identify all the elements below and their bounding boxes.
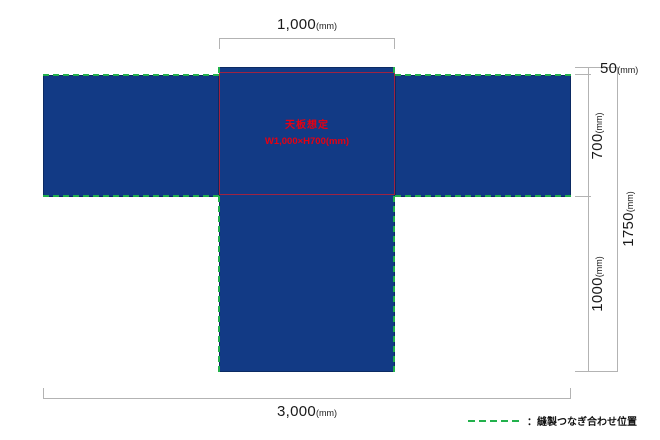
dim-top-width-unit: (mm) xyxy=(316,21,337,31)
dim-total-width-value: 3,000 xyxy=(277,403,316,420)
dim-tick-right-depth-end xyxy=(575,196,591,197)
dim-line-total-width xyxy=(43,398,571,399)
seam-line-left-wing-top xyxy=(43,74,219,76)
fabric-panel-left-wing xyxy=(43,75,219,197)
dim-offset-top-value: 50 xyxy=(600,60,617,77)
seam-dash-sample-icon xyxy=(468,420,520,422)
dim-front-drop-value: 1000 xyxy=(589,277,606,312)
seam-line-right-wing-top xyxy=(395,74,571,76)
fabric-panel-right-wing xyxy=(395,75,571,197)
dim-tick-bottom-left xyxy=(43,388,44,399)
seam-line-left-wing-bottom xyxy=(43,195,219,197)
seam-line-center-left-lower xyxy=(218,196,220,372)
legend-label: ：縫製つなぎ合わせ位置 xyxy=(527,413,637,428)
dim-label-front-drop: 1000(mm) xyxy=(589,256,607,312)
dim-depth-value: 700 xyxy=(589,134,606,160)
legend: ：縫製つなぎ合わせ位置 xyxy=(468,413,637,428)
dim-tick-right-bottom xyxy=(575,371,618,372)
dim-front-drop-unit: (mm) xyxy=(594,256,604,277)
seam-line-center-left-upper xyxy=(218,67,220,76)
dim-label-offset-top: 50(mm) xyxy=(600,60,638,78)
dim-line-top-width xyxy=(219,38,395,39)
seam-line-center-right-upper xyxy=(393,67,395,76)
dim-total-height-value: 1750 xyxy=(620,212,637,247)
tabletop-label-size: W1,000×H700(mm) xyxy=(265,135,349,148)
dim-tick-right-offset50 xyxy=(575,74,591,75)
dim-label-total-height: 1750(mm) xyxy=(620,191,638,247)
dim-top-width-value: 1,000 xyxy=(277,16,316,33)
tabletop-outline: 天板想定 W1,000×H700(mm) xyxy=(219,72,395,195)
dim-tick-top-left xyxy=(219,38,220,49)
layout-diagram: 天板想定 W1,000×H700(mm) 1,000(mm) 3,000(mm)… xyxy=(0,0,660,440)
dim-line-right-outer xyxy=(617,67,618,372)
dim-total-width-unit: (mm) xyxy=(316,408,337,418)
seam-line-right-wing-bottom xyxy=(395,195,571,197)
dim-depth-unit: (mm) xyxy=(594,113,604,134)
dim-tick-top-right xyxy=(394,38,395,49)
dim-offset-top-unit: (mm) xyxy=(617,65,638,75)
dim-tick-bottom-right xyxy=(570,388,571,399)
dim-total-height-unit: (mm) xyxy=(625,191,635,212)
tabletop-label-title: 天板想定 xyxy=(285,119,329,132)
dim-label-top-width: 1,000(mm) xyxy=(219,16,395,34)
seam-line-center-right-lower xyxy=(393,196,395,372)
dim-label-depth: 700(mm) xyxy=(589,113,607,160)
